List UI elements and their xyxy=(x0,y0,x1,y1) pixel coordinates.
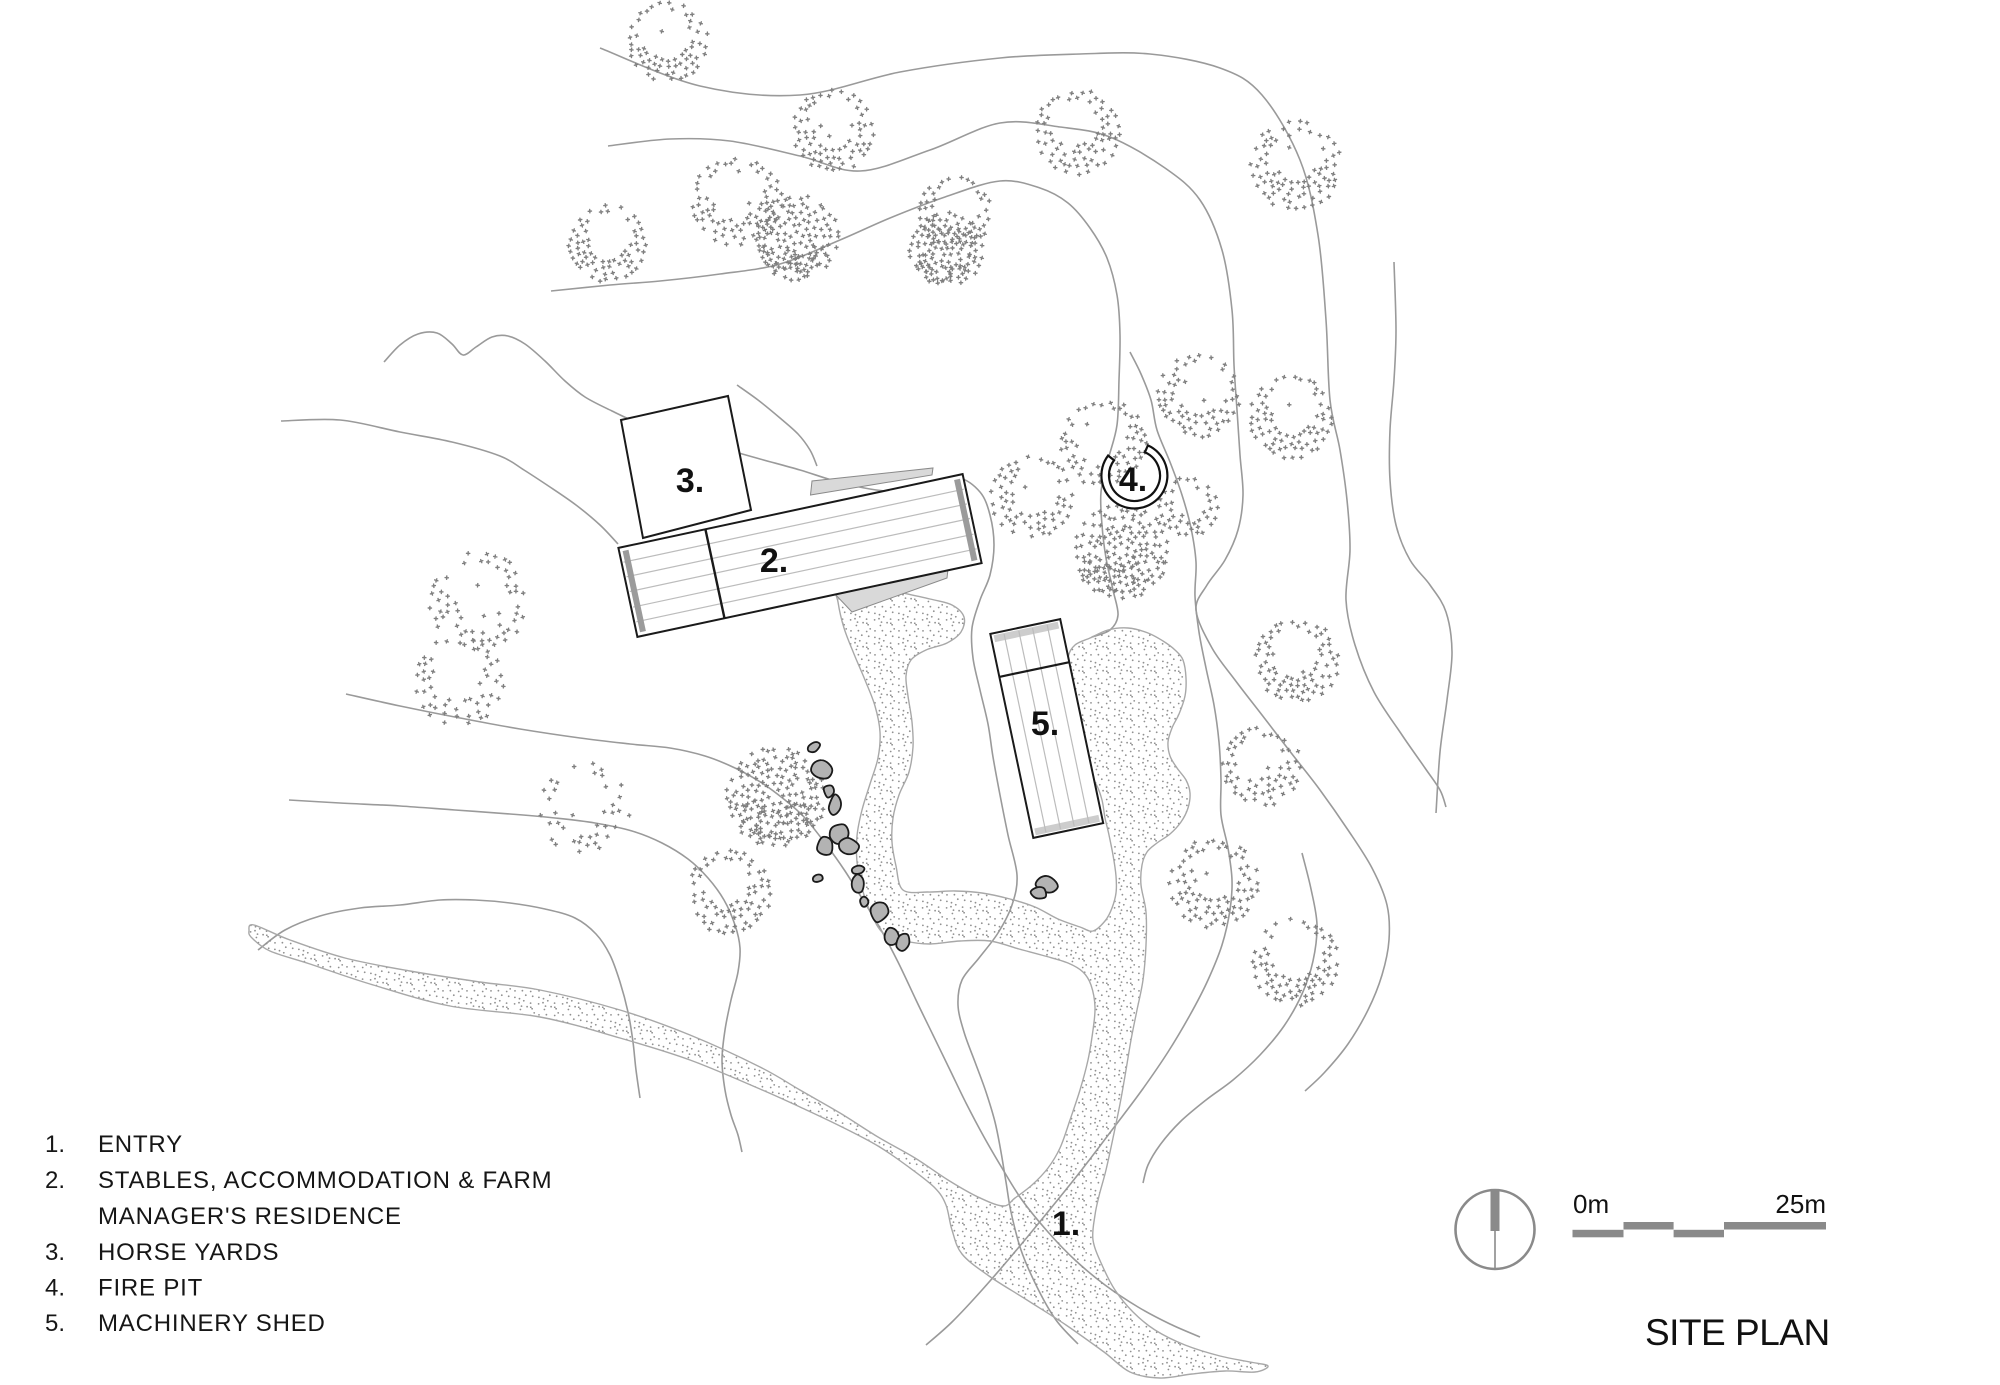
svg-text:2.: 2. xyxy=(760,542,788,580)
svg-text:ENTRY: ENTRY xyxy=(98,1131,183,1158)
svg-text:1.: 1. xyxy=(45,1131,65,1158)
svg-text:5.: 5. xyxy=(45,1310,65,1337)
svg-text:4.: 4. xyxy=(1119,461,1147,499)
svg-text:HORSE YARDS: HORSE YARDS xyxy=(98,1239,279,1266)
svg-text:25m: 25m xyxy=(1775,1189,1826,1219)
svg-text:5.: 5. xyxy=(1031,705,1059,743)
svg-text:0m: 0m xyxy=(1573,1189,1609,1219)
svg-text:4.: 4. xyxy=(45,1275,65,1302)
svg-text:MACHINERY SHED: MACHINERY SHED xyxy=(98,1310,326,1337)
svg-text:FIRE PIT: FIRE PIT xyxy=(98,1275,203,1302)
svg-text:SITE PLAN: SITE PLAN xyxy=(1645,1312,1830,1353)
svg-text:STABLES, ACCOMMODATION & FARM: STABLES, ACCOMMODATION & FARM xyxy=(98,1167,552,1194)
svg-text:3.: 3. xyxy=(676,462,704,500)
svg-text:3.: 3. xyxy=(45,1239,65,1266)
svg-text:MANAGER'S RESIDENCE: MANAGER'S RESIDENCE xyxy=(98,1203,402,1230)
svg-text:2.: 2. xyxy=(45,1167,65,1194)
svg-text:1.: 1. xyxy=(1052,1205,1080,1243)
